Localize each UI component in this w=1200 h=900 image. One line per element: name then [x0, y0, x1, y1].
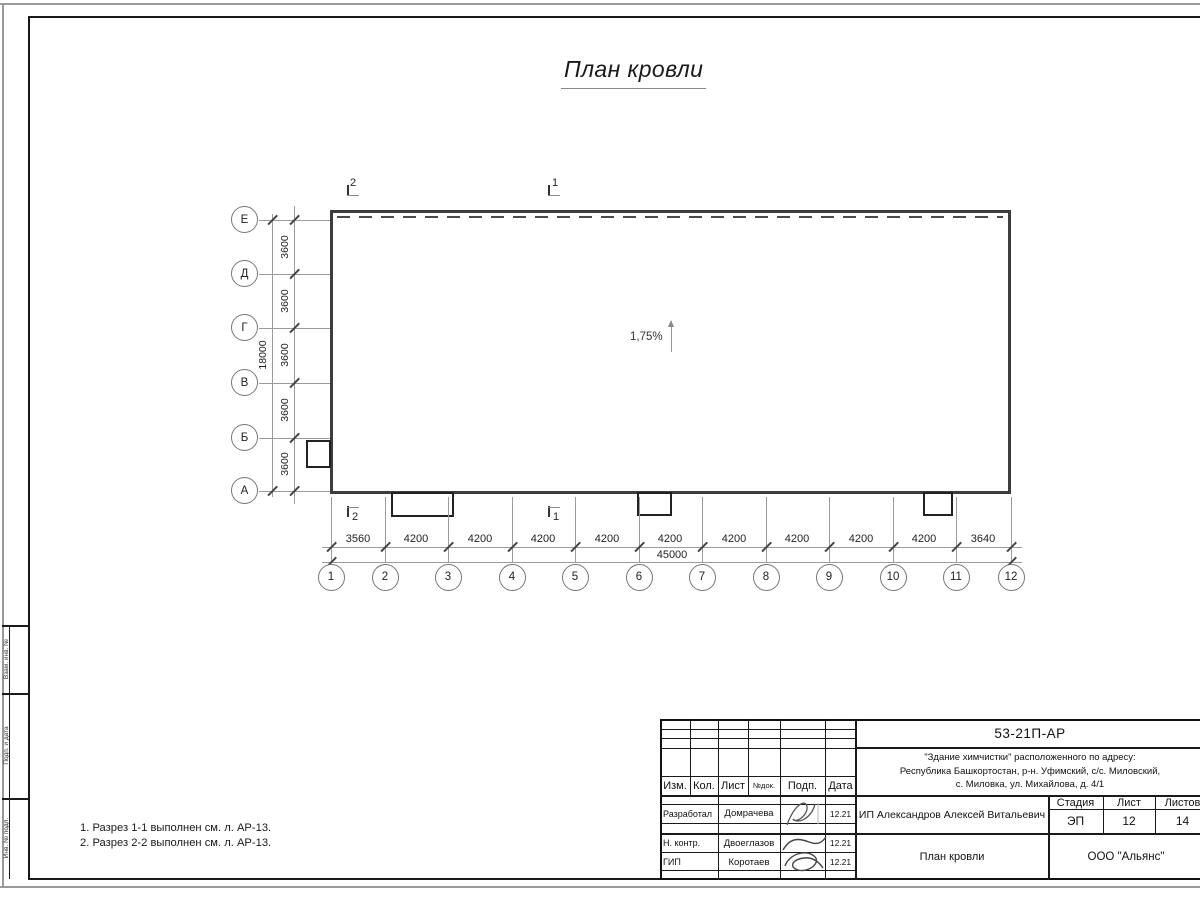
revision-col-header: Дата: [825, 777, 856, 794]
dimension-label: 4200: [450, 533, 510, 545]
signer-date: 12.21: [825, 855, 856, 869]
frame-label: Подп. и дата: [3, 693, 11, 798]
axis-marker: 12: [998, 564, 1025, 591]
stage-value: 12: [1103, 810, 1155, 832]
dimension-label: 3640: [953, 533, 1013, 545]
note-line: 1. Разрез 1-1 выполнен см. л. АР-13.: [80, 822, 271, 834]
revision-col-header: Кол.: [690, 777, 718, 794]
axis-marker: 5: [562, 564, 589, 591]
dimension-label: 3600: [279, 225, 291, 269]
signer-role: Н. контр.: [663, 835, 718, 851]
axis-marker: 3: [435, 564, 462, 591]
dimension-label: 18000: [257, 333, 269, 377]
section-mark: [548, 195, 560, 196]
dimension-label: 4200: [767, 533, 827, 545]
slope-arrow-icon: [671, 326, 672, 352]
axis-marker: Е: [231, 206, 258, 233]
slope-arrow-icon: [668, 320, 674, 327]
project-address-line: Республика Башкортостан, р-н. Уфимский, …: [860, 765, 1200, 779]
frame-line: [0, 886, 1200, 888]
project-address: "Здание химчистки" расположенного по адр…: [860, 751, 1200, 792]
signature: [781, 797, 825, 831]
axis-marker: Б: [231, 424, 258, 451]
dimension-label: 4200: [577, 533, 637, 545]
dimension-label: 3600: [279, 279, 291, 323]
axis-line: [385, 497, 386, 563]
sheet-title: План кровли: [856, 834, 1048, 879]
page-title: План кровли: [561, 56, 706, 89]
stage-col-header: Листов: [1155, 796, 1200, 809]
section-mark-label: 2: [350, 177, 356, 189]
revision-col-header: Изм.: [660, 777, 690, 794]
dimension-line: [294, 206, 295, 504]
axis-marker: 9: [816, 564, 843, 591]
axis-line: [639, 497, 640, 563]
dimension-label: 4200: [386, 533, 446, 545]
roof-canopy-box: [306, 440, 331, 468]
axis-line: [448, 497, 449, 563]
title-block-line: [660, 823, 856, 824]
stage-value: ЭП: [1048, 810, 1103, 832]
dimension-label: 4200: [831, 533, 891, 545]
revision-col-header: №док.: [748, 777, 780, 794]
dimension-label: 3600: [279, 333, 291, 377]
axis-line: [331, 497, 332, 563]
frame-line: [0, 3, 1200, 5]
section-mark: [347, 507, 359, 508]
client-name: ИП Александров Алексей Витальевич: [856, 796, 1048, 833]
roof-eaves-dashed-line: [337, 216, 1003, 218]
axis-line: [893, 497, 894, 563]
axis-marker: 6: [626, 564, 653, 591]
axis-line: [512, 497, 513, 563]
dimension-label: 4200: [704, 533, 764, 545]
stage-value: 14: [1155, 810, 1200, 832]
signer-role: Разработал: [663, 805, 718, 822]
section-mark-label: 1: [553, 511, 559, 523]
dimension-label: 3600: [279, 388, 291, 432]
roof-plan-outline: [330, 210, 1011, 494]
axis-line: [829, 497, 830, 563]
stage-col-header: Стадия: [1048, 796, 1103, 809]
roof-canopy-box: [923, 492, 953, 516]
signer-role: ГИП: [663, 854, 718, 870]
axis-marker: Г: [231, 314, 258, 341]
dimension-label: 4200: [513, 533, 573, 545]
project-address-line: с. Миловка, ул. Михайлова, д. 4/1: [860, 778, 1200, 792]
axis-marker: В: [231, 369, 258, 396]
signer-date: 12.21: [825, 807, 856, 821]
signer-date: 12.21: [825, 836, 856, 850]
roof-canopy-box: [637, 492, 672, 516]
slope-label: 1,75%: [630, 331, 663, 343]
signature: [779, 832, 829, 877]
dimension-line: [322, 562, 1022, 563]
note-line: 2. Разрез 2-2 выполнен см. л. АР-13.: [80, 837, 271, 849]
project-address-line: "Здание химчистки" расположенного по адр…: [860, 751, 1200, 765]
dimension-label: 3600: [279, 442, 291, 486]
frame-line: [28, 16, 30, 880]
stage-col-header: Лист: [1103, 796, 1155, 809]
axis-line: [1011, 497, 1012, 563]
revision-col-header: Подп.: [780, 777, 825, 794]
revision-col-header: Лист: [718, 777, 748, 794]
axis-marker: 8: [753, 564, 780, 591]
axis-marker: 7: [689, 564, 716, 591]
axis-line: [575, 497, 576, 563]
section-mark: [548, 507, 560, 508]
frame-line: [28, 16, 1200, 18]
section-mark: [347, 195, 359, 196]
axis-marker: 10: [880, 564, 907, 591]
section-mark-label: 2: [352, 511, 358, 523]
document-code: 53-21П-АР: [856, 721, 1200, 746]
dimension-label: 4200: [894, 533, 954, 545]
signer-name: Домрачева: [718, 805, 780, 822]
dimension-label: 3560: [328, 533, 388, 545]
roof-canopy-box: [391, 492, 454, 517]
company-name: ООО "Альянс": [1048, 834, 1200, 879]
axis-line: [702, 497, 703, 563]
drawing-sheet: Взам. инв. № Подп. и дата Инв. № подл. П…: [0, 0, 1200, 900]
title-block-line: [856, 747, 1200, 749]
dimension-line: [272, 214, 273, 497]
dimension-label: 4200: [640, 533, 700, 545]
axis-marker: 1: [318, 564, 345, 591]
frame-label: Инв. № подл.: [3, 798, 11, 878]
axis-line: [766, 497, 767, 563]
axis-marker: А: [231, 477, 258, 504]
dimension-line: [322, 547, 1022, 548]
axis-marker: 11: [943, 564, 970, 591]
frame-label: Взам. инв. №: [3, 625, 11, 693]
dimension-label: 45000: [642, 549, 702, 561]
axis-marker: 4: [499, 564, 526, 591]
section-mark-label: 1: [552, 177, 558, 189]
signer-name: Двоеглазов: [718, 835, 780, 851]
axis-marker: Д: [231, 260, 258, 287]
axis-marker: 2: [372, 564, 399, 591]
signer-name: Коротаев: [718, 854, 780, 870]
axis-line: [956, 497, 957, 563]
